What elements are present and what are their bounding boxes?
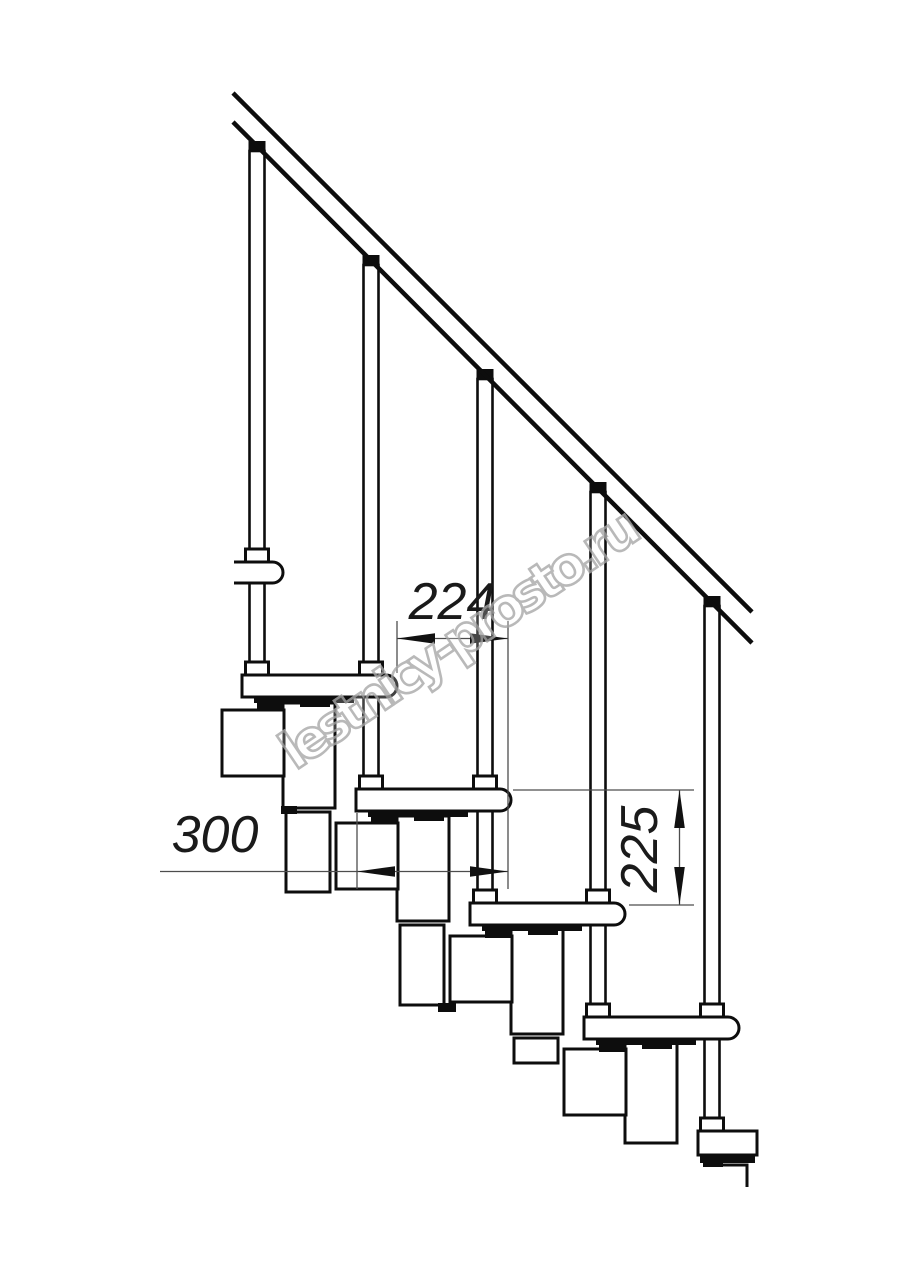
stringer-module-a2	[336, 823, 398, 889]
tread-6-bracket	[700, 1155, 755, 1187]
baluster-2-collar-lower	[360, 776, 383, 789]
baluster-3-collar-lower	[474, 890, 497, 903]
tread-1	[234, 562, 283, 583]
stringer-module-c3	[514, 1038, 558, 1063]
stringer-module-b2	[397, 816, 449, 921]
baluster-5	[705, 606, 720, 1131]
dimension-label-300: 300	[172, 806, 259, 864]
arrow-up	[674, 790, 685, 828]
dimension-label-225: 225	[611, 805, 669, 894]
stringer-module-a1	[222, 710, 284, 776]
tread-6-plate	[698, 1131, 757, 1155]
baluster-5-collar-upper	[701, 1004, 724, 1017]
stringer-module-a3	[450, 936, 512, 1002]
baluster-1	[250, 151, 265, 675]
stringer-module-c1	[286, 812, 330, 892]
stringer-module-a4	[564, 1049, 626, 1115]
baluster-4-collar-upper	[587, 890, 610, 903]
dimension-tread-depth: 300	[160, 806, 508, 889]
tread-5	[584, 1017, 739, 1039]
stringer-module-b3	[511, 929, 563, 1034]
baluster-4-collar-lower	[587, 1004, 610, 1017]
stringer-corner-tab	[438, 1003, 456, 1012]
tread-4	[470, 903, 625, 925]
baluster-3-collar-upper	[474, 776, 497, 789]
arrow-down	[674, 867, 685, 905]
baluster-1-collar-lower	[246, 662, 269, 675]
drawing-canvas: 224 300 225 lestnicy-prosto.ru	[0, 0, 914, 1280]
baluster-1-collar-upper	[246, 549, 269, 562]
tread-3	[356, 789, 511, 811]
stringer-module-c2	[400, 925, 444, 1005]
baluster-5-collar-lower	[701, 1118, 724, 1131]
staircase-technical-drawing: 224 300 225 lestnicy-prosto.ru	[0, 0, 914, 1280]
stringer-corner-tab	[281, 806, 297, 814]
stringer-module-b4	[625, 1042, 677, 1143]
